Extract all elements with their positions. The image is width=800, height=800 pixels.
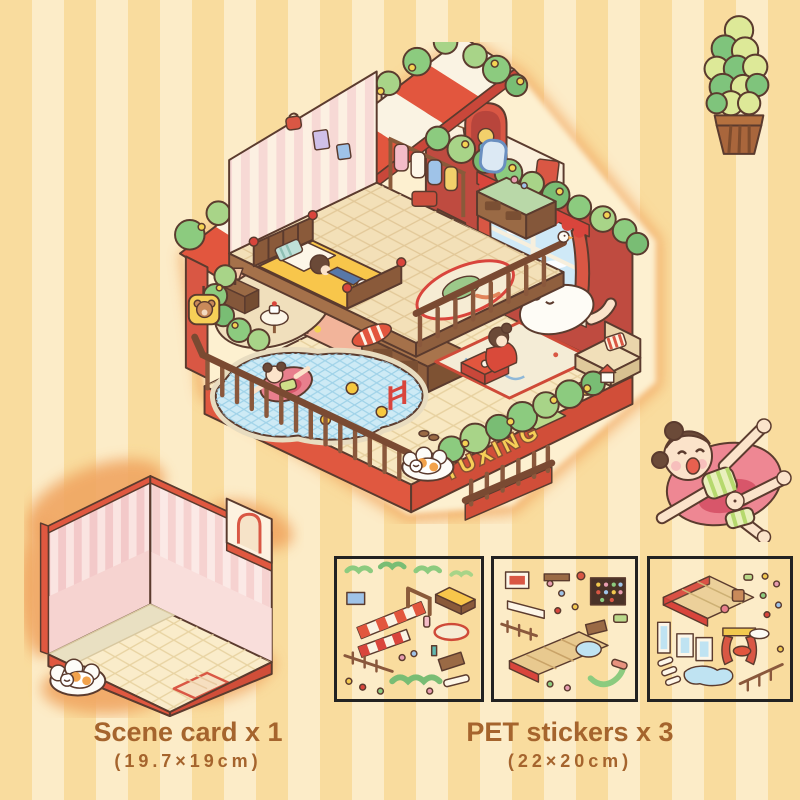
plant-leaves (705, 16, 769, 115)
sticker-sheet-2-art (494, 559, 635, 699)
stickers-size: (22×20cm) (420, 748, 720, 774)
stickers-caption: PET stickers x 3 (22×20cm) (420, 716, 720, 774)
scene-card-size: (19.7×19cm) (38, 748, 338, 774)
product-image: TUXING (0, 0, 800, 800)
plant-pot (715, 115, 764, 154)
scene-card-caption: Scene card x 1 (19.7×19cm) (38, 716, 338, 774)
mini-windows (677, 634, 712, 661)
sticker-sheet-2 (491, 556, 638, 702)
potted-plant (686, 10, 792, 160)
swimming-pool (216, 353, 423, 440)
scene-card-label: Scene card x 1 (38, 716, 338, 748)
girl-head (652, 422, 712, 480)
sticker-sheet-1 (334, 556, 484, 702)
flying-girl (636, 404, 796, 542)
sticker-sheet-3 (647, 556, 793, 702)
suitcase (412, 192, 437, 207)
scene-card (24, 432, 304, 718)
hanging-bag (285, 114, 301, 131)
mini-pool (684, 666, 732, 685)
sticker-sheet-3-art (650, 559, 790, 699)
mini-shelf (591, 578, 626, 605)
stickers-label: PET stickers x 3 (420, 716, 720, 748)
sticker-sheet-1-art (337, 559, 481, 699)
mini-bed (436, 588, 475, 615)
